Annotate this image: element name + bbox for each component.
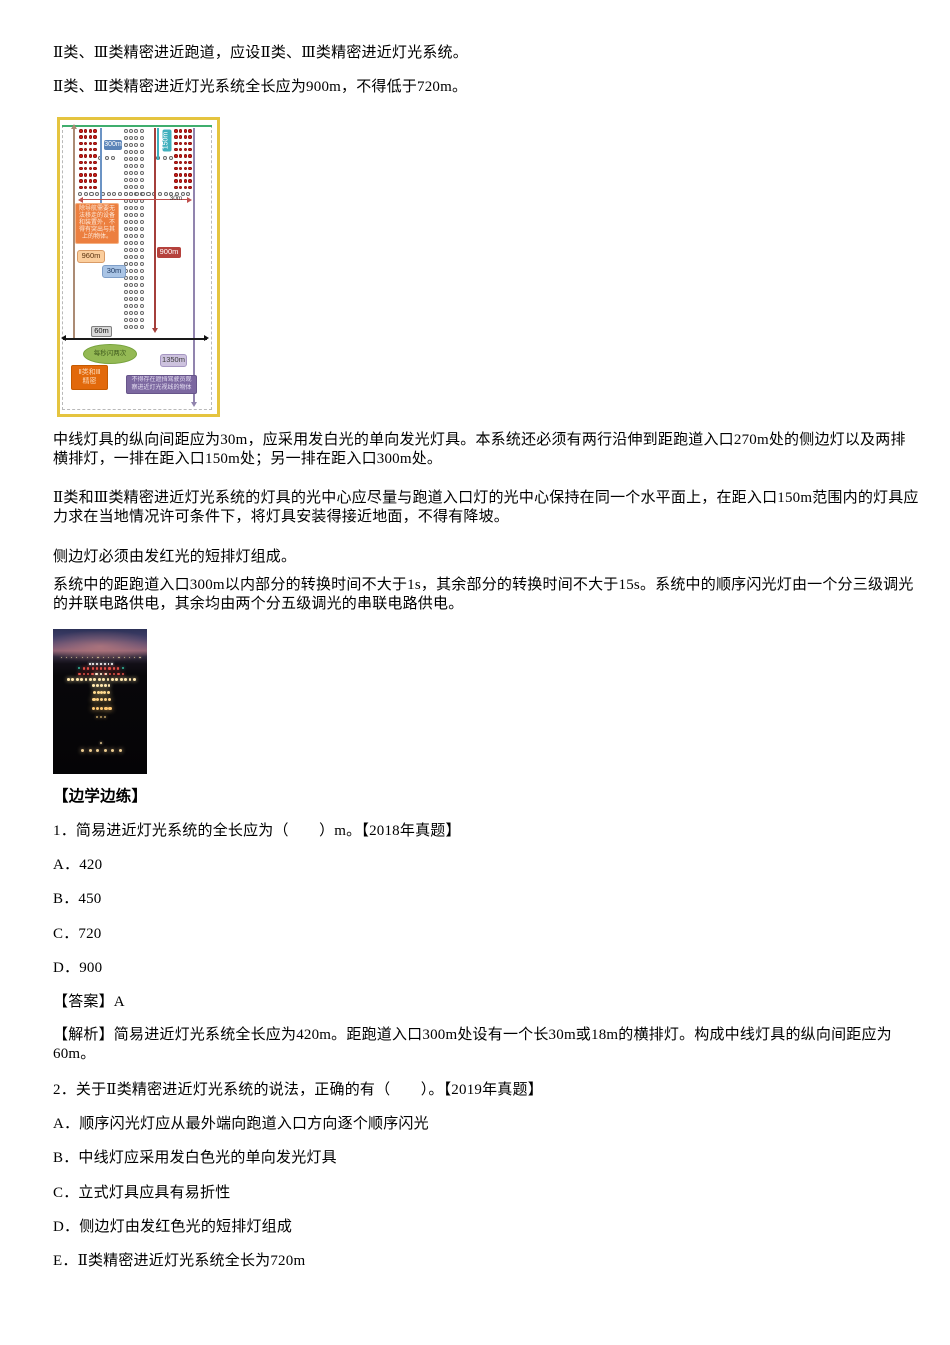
runway-light — [115, 678, 118, 681]
runway-light — [124, 657, 125, 658]
question-2-option-e: E．Ⅱ类精密进近灯光系统全长为720m — [53, 1252, 919, 1271]
question-2-option-a: A．顺序闪光灯应从最外端向跑道入口方向逐个顺序闪光 — [53, 1115, 919, 1134]
runway-light — [122, 673, 124, 675]
runway-light — [81, 749, 84, 752]
question-1-stem: 1．简易进近灯光系统的全长应为（ ）m。【2018年真题】 — [53, 822, 919, 841]
60m-width-arrow — [63, 338, 207, 340]
diagram-label: 不得存在遮挡驾驶员观 察进近灯光视线的物体 — [126, 375, 197, 394]
runway-light — [129, 678, 132, 681]
runway-light — [78, 667, 80, 669]
runway-light — [100, 673, 102, 675]
runway-light — [109, 673, 111, 675]
runway-light — [104, 663, 106, 665]
runway-light — [108, 667, 110, 669]
150m-measure-line — [157, 128, 159, 160]
runway-light — [129, 657, 130, 658]
runway-light — [96, 707, 99, 710]
runway-light — [100, 663, 102, 665]
runway-light — [118, 657, 119, 658]
runway-light — [66, 657, 67, 658]
question-2-stem: 2．关于Ⅱ类精密进近灯光系统的说法，正确的有（ ）。【2019年真题】 — [53, 1081, 919, 1100]
question-2-option-b: B．中线灯应采用发白色光的单向发光灯具 — [53, 1149, 919, 1168]
runway-light — [96, 698, 99, 701]
runway-light — [103, 691, 106, 694]
runway-light — [104, 667, 106, 669]
diagram-label: 1350m — [160, 354, 187, 367]
900m-measure-line — [154, 128, 156, 330]
runway-light — [67, 678, 70, 681]
runway-light — [113, 667, 115, 669]
arrowhead — [152, 328, 158, 333]
paragraph-runway-requirement: Ⅱ类、Ⅲ类精密进近跑道，应设Ⅱ类、Ⅲ类精密进近灯光系统。 — [53, 44, 919, 63]
runway-light — [91, 673, 93, 675]
runway-light — [96, 716, 98, 718]
practice-heading: 【边学边练】 — [53, 787, 919, 806]
arrowhead — [61, 335, 66, 341]
runway-light — [95, 673, 97, 675]
runway-light — [71, 657, 72, 658]
runway-light — [61, 657, 62, 658]
diagram-label: 除导航需要无 法移走的设备 和装置外，不 得有突出与其 上的物体。 — [75, 203, 119, 244]
runway-light — [85, 678, 88, 681]
question-1-option-d: D．900 — [53, 959, 919, 978]
arrowhead — [78, 197, 83, 203]
runway-light — [87, 673, 89, 675]
runway-light — [104, 707, 107, 710]
runway-light — [113, 657, 114, 658]
runway-light — [113, 673, 115, 675]
runway-light — [108, 684, 111, 687]
runway-light — [111, 663, 113, 665]
question-1-option-c: C．720 — [53, 925, 919, 944]
runway-light — [96, 684, 99, 687]
runway-light — [89, 749, 92, 752]
runway-light — [107, 691, 110, 694]
approach-lighting-diagram: 300m150m30m除导航需要无 法移走的设备 和装置外，不 得有突出与其 上… — [57, 117, 220, 417]
runway-light — [83, 673, 85, 675]
runway-light — [92, 667, 94, 669]
runway-light — [102, 678, 105, 681]
runway-light — [82, 657, 83, 658]
runway-light — [104, 749, 107, 752]
runway-light — [96, 749, 99, 752]
runway-light — [100, 716, 102, 718]
paragraph-switch-time: 系统中的距跑道入口300m以内部分的转换时间不大于1s，其余部分的转换时间不大于… — [53, 576, 919, 614]
arrowhead — [187, 197, 192, 203]
runway-light — [89, 663, 91, 665]
runway-light — [139, 657, 140, 658]
paragraph-centerline-spacing: 中线灯具的纵向间距应为30m，应采用发白光的单向发光灯具。本系统还必须有两行沿伸… — [53, 431, 919, 469]
question-1-answer: 【答案】A — [53, 993, 919, 1012]
runway-light — [107, 678, 110, 681]
arrowhead — [204, 335, 209, 341]
runway-light — [104, 684, 107, 687]
runway-light — [98, 678, 101, 681]
runway-threshold-line — [62, 125, 212, 127]
diagram-label: 900m — [157, 247, 181, 258]
runway-light — [117, 673, 119, 675]
runway-light — [93, 678, 96, 681]
runway-light — [100, 698, 103, 701]
runway-light — [100, 707, 103, 710]
runway-light — [80, 678, 83, 681]
runway-light — [108, 657, 109, 658]
diagram-label: 960m — [77, 250, 105, 263]
arrowhead — [71, 124, 77, 129]
runway-light — [120, 678, 123, 681]
runway-light — [124, 678, 127, 681]
runway-light — [104, 716, 106, 718]
question-2-option-d: D．侧边灯由发红色光的短排灯组成 — [53, 1218, 919, 1237]
paragraph-system-length: Ⅱ类、Ⅲ类精密进近灯光系统全长应为900m，不得低于720m。 — [53, 78, 919, 97]
runway-light — [108, 707, 111, 710]
approach-diagram-canvas: 300m150m30m除导航需要无 法移走的设备 和装置外，不 得有突出与其 上… — [60, 120, 217, 414]
diagram-label: 30m — [166, 195, 186, 203]
diagram-label: Ⅱ类和Ⅲ 精密 — [71, 365, 108, 390]
diagram-label: 30m — [102, 265, 126, 278]
runway-light — [103, 657, 104, 658]
runway-light — [97, 657, 98, 658]
runway-light — [92, 707, 95, 710]
1350m-measure-line — [193, 128, 195, 404]
runway-photo-canvas — [53, 629, 147, 774]
runway-light — [134, 657, 135, 658]
runway-light — [83, 667, 85, 669]
runway-light — [93, 691, 96, 694]
runway-light — [108, 663, 110, 665]
diagram-label: 60m — [91, 326, 112, 337]
question-1-option-a: A．420 — [53, 856, 919, 875]
runway-light — [122, 667, 124, 669]
runway-light — [117, 667, 119, 669]
paragraph-side-lights: 侧边灯必须由发红光的短排灯组成。 — [53, 548, 919, 567]
diagram-label: 300m — [104, 140, 122, 150]
paragraph-light-center: Ⅱ类和Ⅲ类精密进近灯光系统的灯具的光中心应尽量与跑道入口灯的光中心保持在同一个水… — [53, 489, 919, 527]
runway-light — [76, 657, 77, 658]
runway-light — [100, 684, 103, 687]
runway-light — [96, 667, 98, 669]
runway-light — [76, 678, 79, 681]
document-page: Ⅱ类、Ⅲ类精密进近跑道，应设Ⅱ类、Ⅲ类精密进近灯光系统。 Ⅱ类、Ⅲ类精密进近灯光… — [0, 0, 950, 1345]
runway-light — [100, 742, 102, 744]
runway-light — [105, 673, 107, 675]
runway-light — [71, 678, 74, 681]
runway-light — [111, 749, 114, 752]
runway-light — [78, 673, 80, 675]
runway-light — [119, 749, 122, 752]
runway-light — [92, 684, 95, 687]
question-1-analysis: 【解析】简易进近灯光系统全长应为420m。距跑道入口300m处设有一个长30m或… — [53, 1026, 919, 1064]
question-1-option-b: B．450 — [53, 890, 919, 909]
runway-light — [96, 663, 98, 665]
arrowhead — [191, 402, 197, 407]
runway-light — [92, 698, 95, 701]
runway-light — [87, 667, 89, 669]
runway-light — [133, 678, 136, 681]
runway-light — [89, 678, 92, 681]
runway-night-photo — [53, 629, 147, 774]
runway-light — [87, 657, 88, 658]
runway-light — [92, 657, 93, 658]
runway-light — [104, 698, 107, 701]
diagram-label: 150m — [163, 130, 172, 152]
runway-light — [92, 663, 94, 665]
question-2-option-c: C．立式灯具应具有易折性 — [53, 1184, 919, 1203]
runway-light — [100, 667, 102, 669]
runway-light — [111, 678, 114, 681]
diagram-label: 每秒闪两次 — [83, 344, 137, 364]
runway-light — [108, 698, 111, 701]
